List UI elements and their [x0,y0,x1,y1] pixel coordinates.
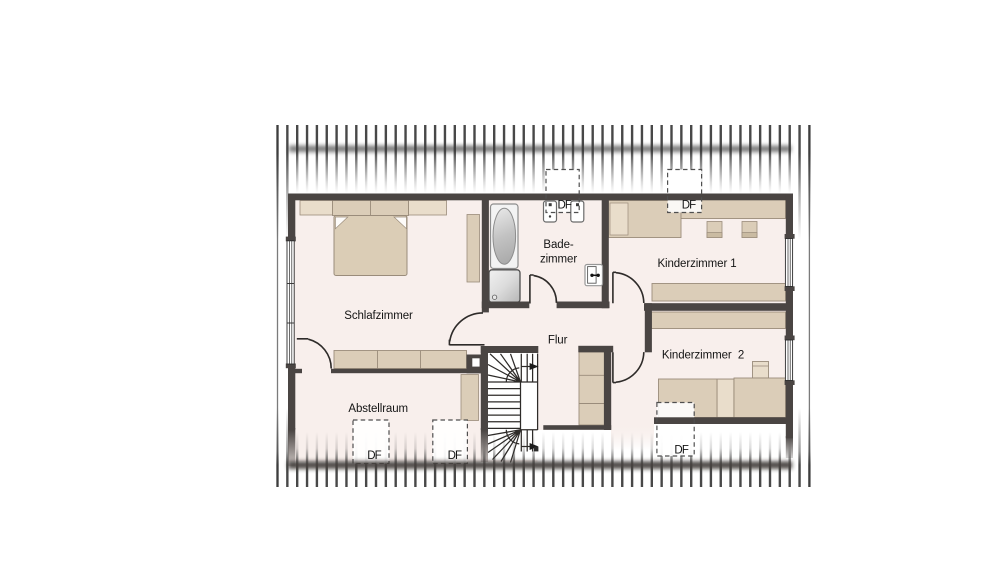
svg-text:DF: DF [674,445,688,457]
svg-text:DF: DF [448,450,462,462]
svg-text:Flur: Flur [548,335,568,347]
svg-text:Bade-: Bade- [543,239,573,251]
svg-text:zimmer: zimmer [540,253,577,265]
svg-text:DF: DF [682,200,696,212]
svg-text:Kinderzimmer 2: Kinderzimmer 2 [662,350,744,362]
svg-text:DF: DF [558,200,572,212]
svg-text:Abstellraum: Abstellraum [348,403,408,415]
svg-text:Schlafzimmer: Schlafzimmer [344,310,413,322]
svg-text:Kinderzimmer 1: Kinderzimmer 1 [657,258,736,270]
svg-text:DF: DF [367,450,381,462]
